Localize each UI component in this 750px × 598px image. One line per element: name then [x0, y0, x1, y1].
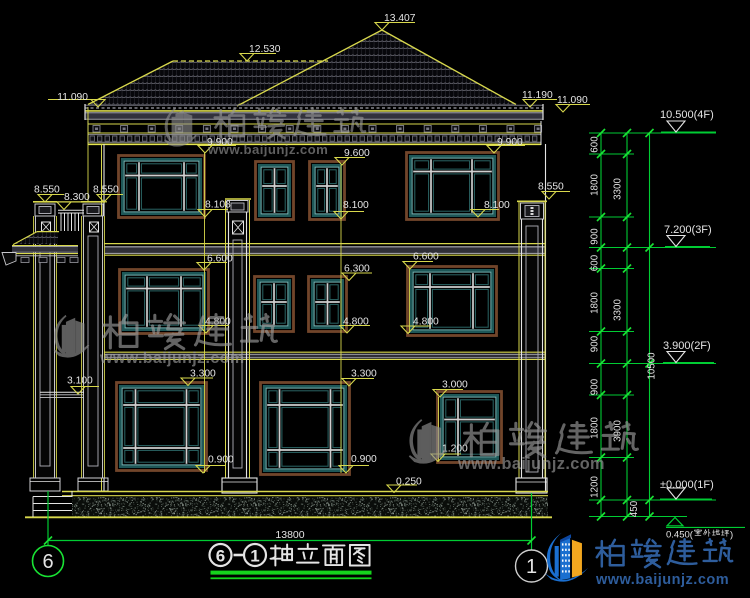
svg-text:0.250: 0.250 [396, 477, 422, 488]
svg-text:6: 6 [42, 551, 53, 573]
svg-text:13.407: 13.407 [384, 13, 416, 24]
svg-text:3300: 3300 [613, 178, 624, 200]
svg-text:900: 900 [590, 378, 601, 395]
svg-text:900: 900 [590, 228, 601, 245]
svg-text:6.600: 6.600 [413, 252, 439, 263]
svg-text:www.baijunjz.com: www.baijunjz.com [99, 350, 245, 367]
svg-text:): ) [730, 530, 733, 541]
svg-text:www.baijunjz.com: www.baijunjz.com [457, 455, 605, 473]
svg-text:4.800: 4.800 [343, 317, 369, 328]
svg-text:7.200(3F): 7.200(3F) [664, 224, 712, 236]
svg-text:3.300: 3.300 [190, 369, 216, 380]
svg-text:3900: 3900 [613, 420, 624, 442]
svg-text:9.600: 9.600 [344, 148, 370, 159]
svg-text:6.600: 6.600 [207, 254, 233, 265]
svg-text:11.090: 11.090 [57, 92, 88, 103]
svg-text:1800: 1800 [590, 174, 601, 196]
svg-text:8.550: 8.550 [34, 185, 60, 196]
svg-text:6: 6 [216, 547, 225, 566]
svg-text:1800: 1800 [590, 417, 601, 439]
svg-text:1: 1 [526, 556, 537, 578]
svg-text:8.108: 8.108 [205, 200, 231, 211]
svg-text:4.800: 4.800 [413, 317, 439, 328]
svg-text:3.000: 3.000 [442, 380, 468, 391]
svg-text:600: 600 [590, 254, 601, 271]
svg-text:±0.000(1F): ±0.000(1F) [660, 479, 714, 491]
svg-text:3.300: 3.300 [351, 369, 377, 380]
svg-text:1200: 1200 [590, 476, 601, 498]
svg-text:450: 450 [629, 500, 640, 517]
svg-text:0.900: 0.900 [208, 455, 234, 466]
svg-text:www.baijunjz.com: www.baijunjz.com [595, 572, 729, 588]
svg-text:8.100: 8.100 [484, 200, 510, 211]
svg-text:10.500(4F): 10.500(4F) [660, 109, 714, 121]
svg-text:8.300: 8.300 [64, 192, 90, 203]
svg-text:11.090: 11.090 [557, 95, 588, 106]
svg-text:6.300: 6.300 [344, 264, 370, 275]
svg-text:12.530: 12.530 [249, 44, 281, 55]
svg-text:600: 600 [590, 136, 601, 153]
svg-text:3.900(2F): 3.900(2F) [663, 340, 711, 352]
svg-text:1800: 1800 [590, 292, 601, 314]
svg-text:13800: 13800 [275, 529, 304, 541]
svg-text:0.450(: 0.450( [666, 530, 694, 541]
svg-text:www.baijunjz.com: www.baijunjz.com [207, 142, 328, 157]
svg-text:8.550: 8.550 [93, 185, 119, 196]
svg-text:11.190: 11.190 [522, 90, 553, 101]
svg-text:3300: 3300 [613, 299, 624, 321]
svg-text:10500: 10500 [647, 352, 658, 380]
svg-text:1: 1 [250, 547, 259, 566]
svg-text:8.100: 8.100 [343, 200, 369, 211]
svg-text:900: 900 [590, 335, 601, 352]
svg-text:9.900: 9.900 [497, 137, 523, 148]
svg-text:8.550: 8.550 [538, 182, 564, 193]
svg-text:3.100: 3.100 [67, 376, 93, 387]
svg-text:0.900: 0.900 [351, 454, 377, 465]
